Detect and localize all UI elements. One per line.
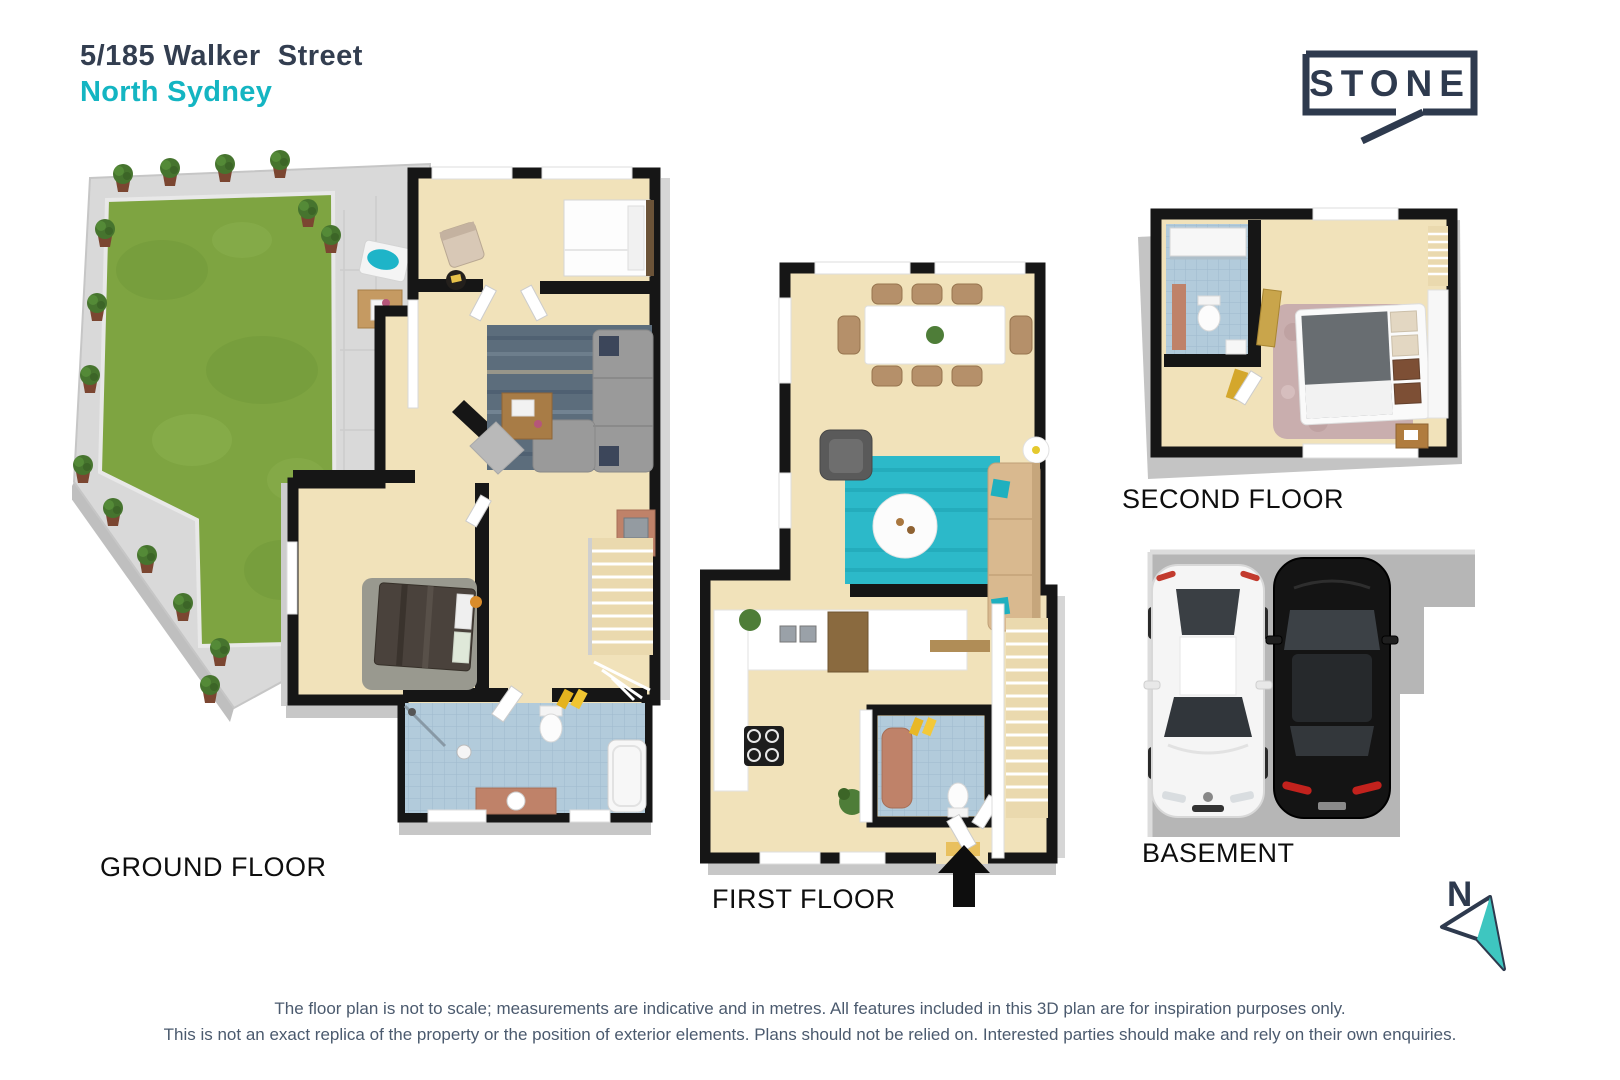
double-bed xyxy=(1295,303,1431,425)
page-title: 5/185 Walker Street xyxy=(80,40,363,73)
mirror xyxy=(1382,636,1398,644)
second-floor-label: SECOND FLOOR xyxy=(1122,484,1344,515)
disclaimer-line-2: This is not an exact replica of the prop… xyxy=(0,1022,1620,1048)
stone-brand-logo: STONE xyxy=(1302,50,1480,148)
cooktop xyxy=(744,726,784,766)
floor-lamp xyxy=(457,745,471,759)
bathroom xyxy=(860,710,1000,829)
floorplan-page: 5/185 Walker Street North Sydney STONE xyxy=(0,0,1620,1080)
ground-floor-label: GROUND FLOOR xyxy=(100,852,327,883)
round-coffee-table xyxy=(873,494,937,558)
window xyxy=(542,167,632,179)
entry-arrow-icon xyxy=(938,845,990,907)
window xyxy=(287,542,297,614)
armchair xyxy=(820,430,872,480)
mirror xyxy=(1256,681,1272,689)
first-floor-plan xyxy=(700,258,1070,878)
bathtub xyxy=(608,740,646,812)
bedside-lamp xyxy=(470,596,482,608)
table-plant xyxy=(926,326,944,344)
windshield xyxy=(1164,697,1252,737)
throw-pillow xyxy=(599,446,619,466)
rear-window xyxy=(1290,726,1374,756)
toilet xyxy=(540,706,562,742)
window xyxy=(432,167,512,179)
window xyxy=(428,810,486,822)
shower-tray xyxy=(1170,228,1246,256)
basement-plan xyxy=(1122,532,1477,847)
mirror xyxy=(1266,636,1282,644)
vanity xyxy=(476,788,556,814)
license-plate xyxy=(1318,802,1346,810)
windshield xyxy=(1284,610,1380,650)
plant xyxy=(739,609,761,631)
page-subtitle: North Sydney xyxy=(80,76,363,109)
logo-tail xyxy=(1362,112,1423,141)
car-white xyxy=(1144,565,1272,817)
window xyxy=(570,810,610,822)
wardrobe xyxy=(1428,290,1448,418)
car-black xyxy=(1266,558,1398,818)
basement-label: BASEMENT xyxy=(1142,838,1295,869)
ground-floor-plan xyxy=(72,150,692,855)
first-floor-label: FIRST FLOOR xyxy=(712,884,896,915)
throw-pillow xyxy=(599,336,619,356)
shower xyxy=(882,728,912,808)
grille xyxy=(1192,805,1224,812)
throw-pillow xyxy=(991,479,1011,499)
towel-ladder xyxy=(1172,284,1186,350)
rear-window xyxy=(1176,589,1240,635)
bedside-table xyxy=(1396,424,1428,448)
island-cabinet xyxy=(828,612,868,672)
window xyxy=(1313,208,1398,220)
roof-glass xyxy=(1292,654,1372,722)
disclaimer-line-1: The floor plan is not to scale; measurem… xyxy=(0,996,1620,1022)
double-bed xyxy=(374,583,475,671)
mirror xyxy=(1144,681,1160,689)
stone-logo-text: STONE xyxy=(1309,63,1471,104)
coffee-table xyxy=(502,393,552,439)
bathroom xyxy=(405,686,646,822)
single-bed xyxy=(564,200,654,276)
living-room xyxy=(470,325,653,474)
property-address: 5/185 Walker Street North Sydney xyxy=(80,40,363,109)
staircase xyxy=(1428,226,1448,286)
compass-north-icon: N xyxy=(1390,848,1515,983)
second-floor-plan xyxy=(1108,192,1473,492)
toilet xyxy=(948,783,968,817)
shelf xyxy=(930,640,990,652)
toilet xyxy=(1198,296,1220,331)
vanity xyxy=(1226,340,1246,354)
